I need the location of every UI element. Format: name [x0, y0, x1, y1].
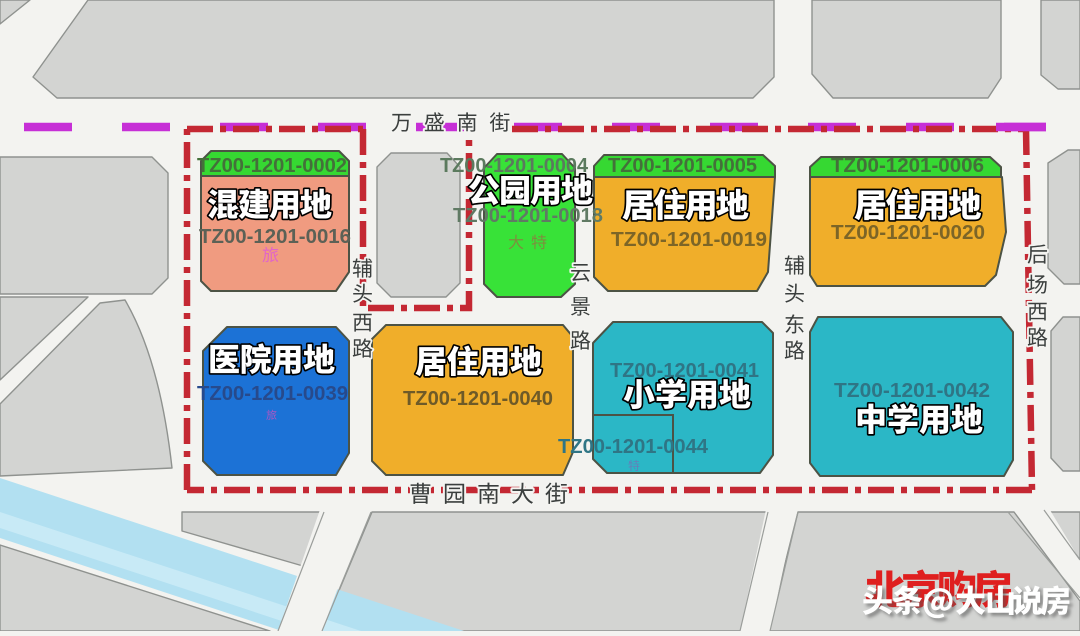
svg-text:TZ00-1201-0005: TZ00-1201-0005 [608, 155, 757, 177]
svg-text:TZ00-1201-0006: TZ00-1201-0006 [831, 155, 984, 177]
svg-text:TZ00-1201-0016: TZ00-1201-0016 [199, 226, 351, 248]
svg-text:TZ00-1201-0041: TZ00-1201-0041 [610, 360, 759, 382]
svg-text:TZ00-1201-0018: TZ00-1201-0018 [453, 205, 603, 227]
svg-text:TZ00-1201-0002: TZ00-1201-0002 [197, 155, 347, 177]
svg-text:TZ00-1201-0019: TZ00-1201-0019 [611, 229, 767, 251]
svg-text:TZ00-1201-0039: TZ00-1201-0039 [197, 383, 348, 405]
svg-text:TZ00-1201-0040: TZ00-1201-0040 [403, 388, 553, 410]
svg-text:TZ00-1201-0044: TZ00-1201-0044 [558, 436, 709, 458]
svg-text:TZ00-1201-0020: TZ00-1201-0020 [831, 222, 985, 244]
svg-text:TZ00-1201-0042: TZ00-1201-0042 [834, 380, 990, 402]
